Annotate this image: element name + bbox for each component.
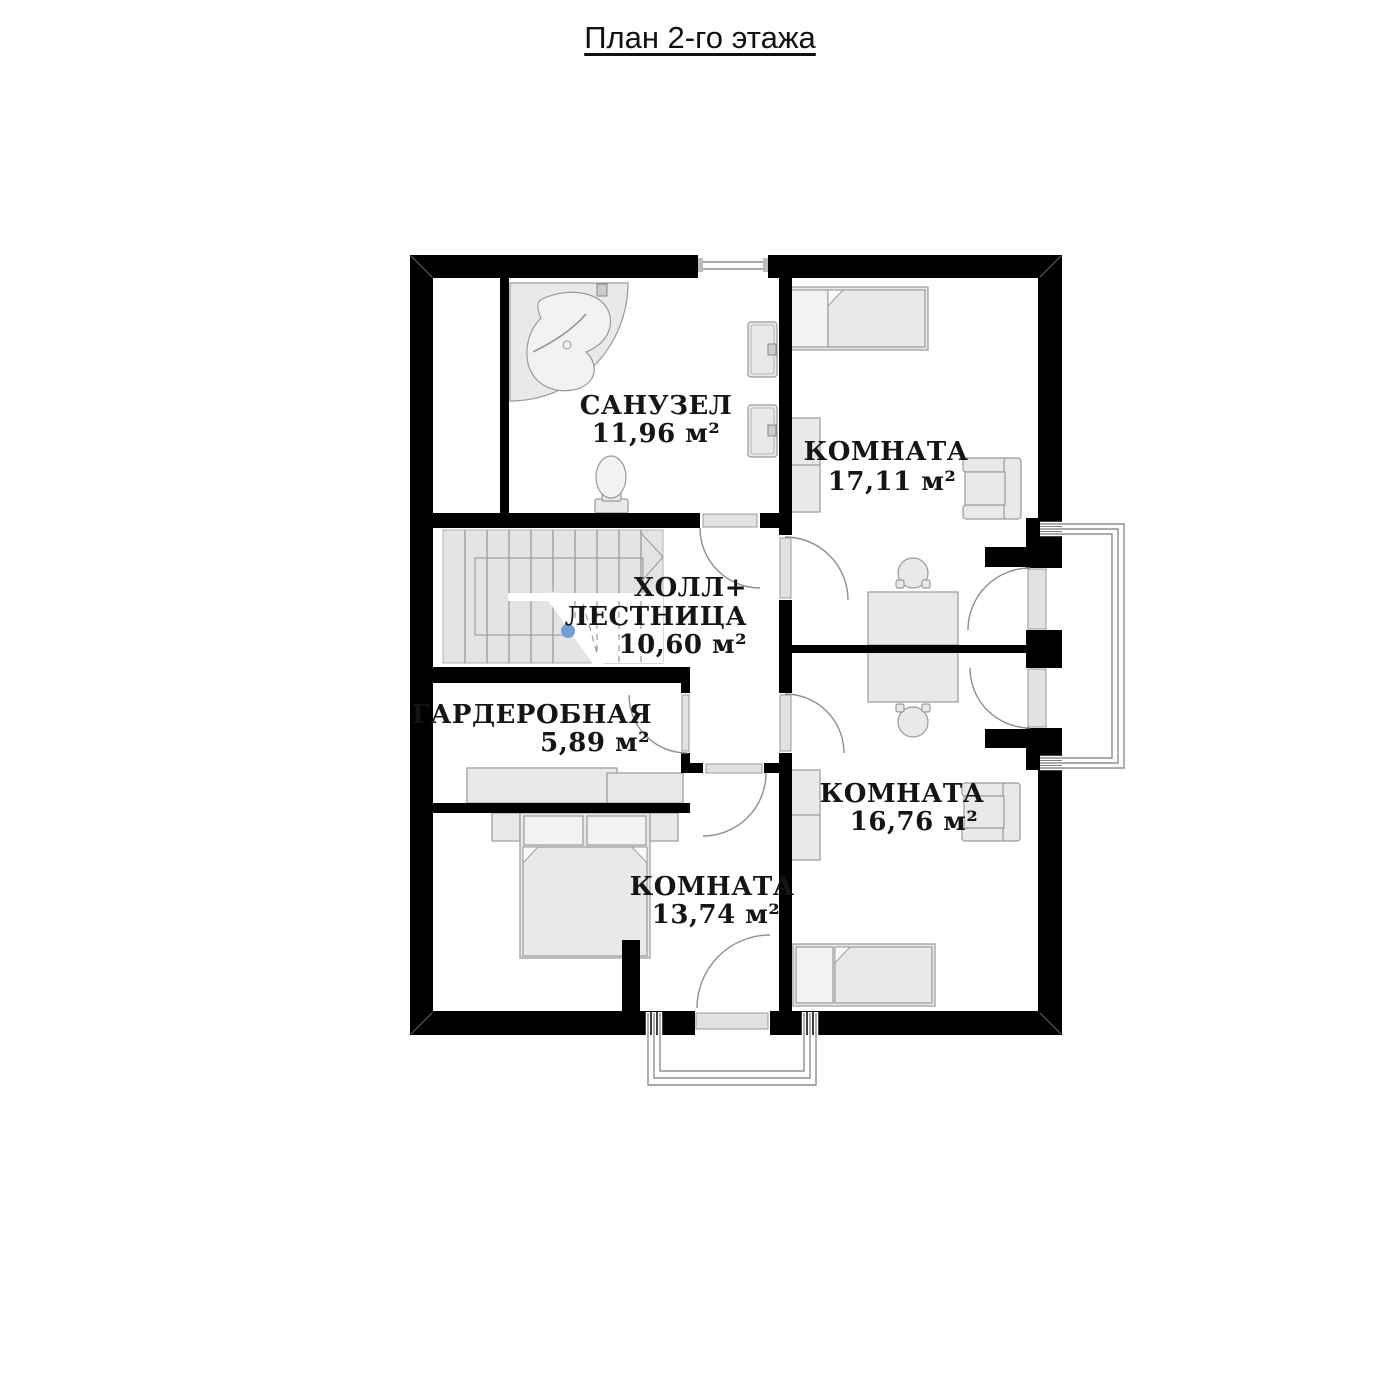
room-name: КОМНАТА <box>630 872 795 902</box>
door-leaf-balcony-bottom <box>696 1013 768 1029</box>
desk-chair-17 <box>896 558 930 588</box>
room-16-label: КОМНАТА 16,76 м² <box>820 779 985 837</box>
room-name: САНУЗЕЛ <box>580 391 733 421</box>
room-area: 5,89 м² <box>540 728 650 758</box>
room-name-line1: ХОЛЛ+ <box>634 573 747 603</box>
door-arc-room13 <box>703 773 766 836</box>
single-bed-bottom <box>793 944 935 1006</box>
door-leaf-wardrobe <box>682 695 689 751</box>
room-name: КОМНАТА <box>804 437 969 467</box>
sink-faucet-icon <box>768 344 776 355</box>
door-leaf-bathroom <box>703 514 757 527</box>
storage-shelf-right <box>607 773 683 803</box>
room-area: 13,74 м² <box>652 900 780 930</box>
sink-1 <box>748 322 777 377</box>
room-area: 16,76 м² <box>850 807 978 837</box>
door-leaf-room16 <box>780 695 791 751</box>
storage-shelf-left <box>467 768 617 803</box>
room-name: КОМНАТА <box>820 779 985 809</box>
desk-chair-16 <box>896 704 930 737</box>
toilet <box>595 456 628 513</box>
door-arc-balcony-lower <box>970 668 1030 728</box>
room-17-label: КОМНАТА 17,11 м² <box>804 437 969 497</box>
room-13-label: КОМНАТА 13,74 м² <box>630 872 795 930</box>
wardrobe-label: ГАРДЕРОБНАЯ 5,89 м² <box>412 700 652 758</box>
room-bathroom-label: САНУЗЕЛ 11,96 м² <box>580 391 733 449</box>
door-arc-room16 <box>785 694 844 753</box>
room-name: ГАРДЕРОБНАЯ <box>412 700 652 730</box>
floor-plan: САНУЗЕЛ 11,96 м² КОМНАТА 17,11 м² ХОЛЛ+ … <box>0 0 1400 1400</box>
door-leaf-balcony-upper <box>1028 569 1046 629</box>
door-arc-balcony-bottom <box>697 935 770 1008</box>
bathtub-faucet-icon <box>597 284 607 296</box>
armchair-17 <box>963 458 1021 519</box>
desk-16 <box>868 652 958 702</box>
door-leaf-room13 <box>706 764 762 773</box>
single-bed-top <box>787 287 928 350</box>
desk-17 <box>868 592 958 645</box>
window-top <box>698 255 768 278</box>
door-leaf-room17 <box>780 538 791 598</box>
floor-plan-page: План 2-го этажа <box>0 0 1400 1400</box>
room-area: 10,60 м² <box>619 630 747 660</box>
door-arc-room17 <box>785 537 848 600</box>
bathtub-corner <box>510 283 628 401</box>
door-arc-balcony-upper <box>968 568 1030 630</box>
room-name-line2: ЛЕСТНИЦА <box>565 602 747 632</box>
door-leaf-balcony-lower <box>1028 669 1046 727</box>
sink-2 <box>748 405 777 457</box>
sink-faucet-icon <box>768 425 776 436</box>
room-area: 17,11 м² <box>828 467 956 497</box>
room-area: 11,96 м² <box>592 419 720 449</box>
